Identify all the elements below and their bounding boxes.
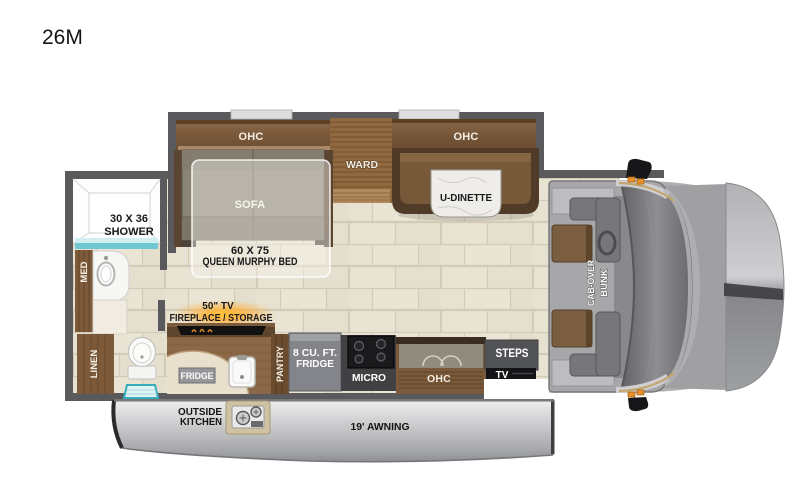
svg-text:PANTRY: PANTRY bbox=[275, 346, 285, 382]
svg-text:50" TV: 50" TV bbox=[202, 301, 234, 312]
svg-text:26M: 26M bbox=[42, 26, 83, 49]
svg-text:OHC: OHC bbox=[238, 131, 263, 143]
svg-text:SHOWER: SHOWER bbox=[104, 226, 154, 238]
svg-text:19' AWNING: 19' AWNING bbox=[351, 422, 410, 433]
svg-text:FRIDGE: FRIDGE bbox=[181, 371, 214, 381]
svg-text:STEPS: STEPS bbox=[496, 348, 529, 360]
svg-text:FRIDGE: FRIDGE bbox=[296, 359, 334, 370]
svg-text:QUEEN MURPHY BED: QUEEN MURPHY BED bbox=[203, 256, 298, 268]
svg-text:30 X 36: 30 X 36 bbox=[110, 213, 148, 225]
svg-text:MICRO: MICRO bbox=[352, 373, 386, 384]
svg-text:OHC: OHC bbox=[427, 373, 451, 385]
svg-text:U-DINETTE: U-DINETTE bbox=[440, 192, 492, 204]
svg-text:CAB-OVER: CAB-OVER bbox=[586, 260, 597, 306]
svg-text:FIREPLACE / STORAGE: FIREPLACE / STORAGE bbox=[170, 312, 273, 324]
svg-text:LINEN: LINEN bbox=[89, 350, 100, 379]
svg-text:KITCHEN: KITCHEN bbox=[180, 417, 222, 428]
svg-text:WARD: WARD bbox=[346, 159, 378, 171]
svg-text:OHC: OHC bbox=[453, 131, 478, 143]
svg-text:BUNK: BUNK bbox=[599, 269, 610, 297]
svg-text:MED: MED bbox=[79, 261, 90, 282]
svg-text:8 CU. FT.: 8 CU. FT. bbox=[293, 348, 337, 359]
